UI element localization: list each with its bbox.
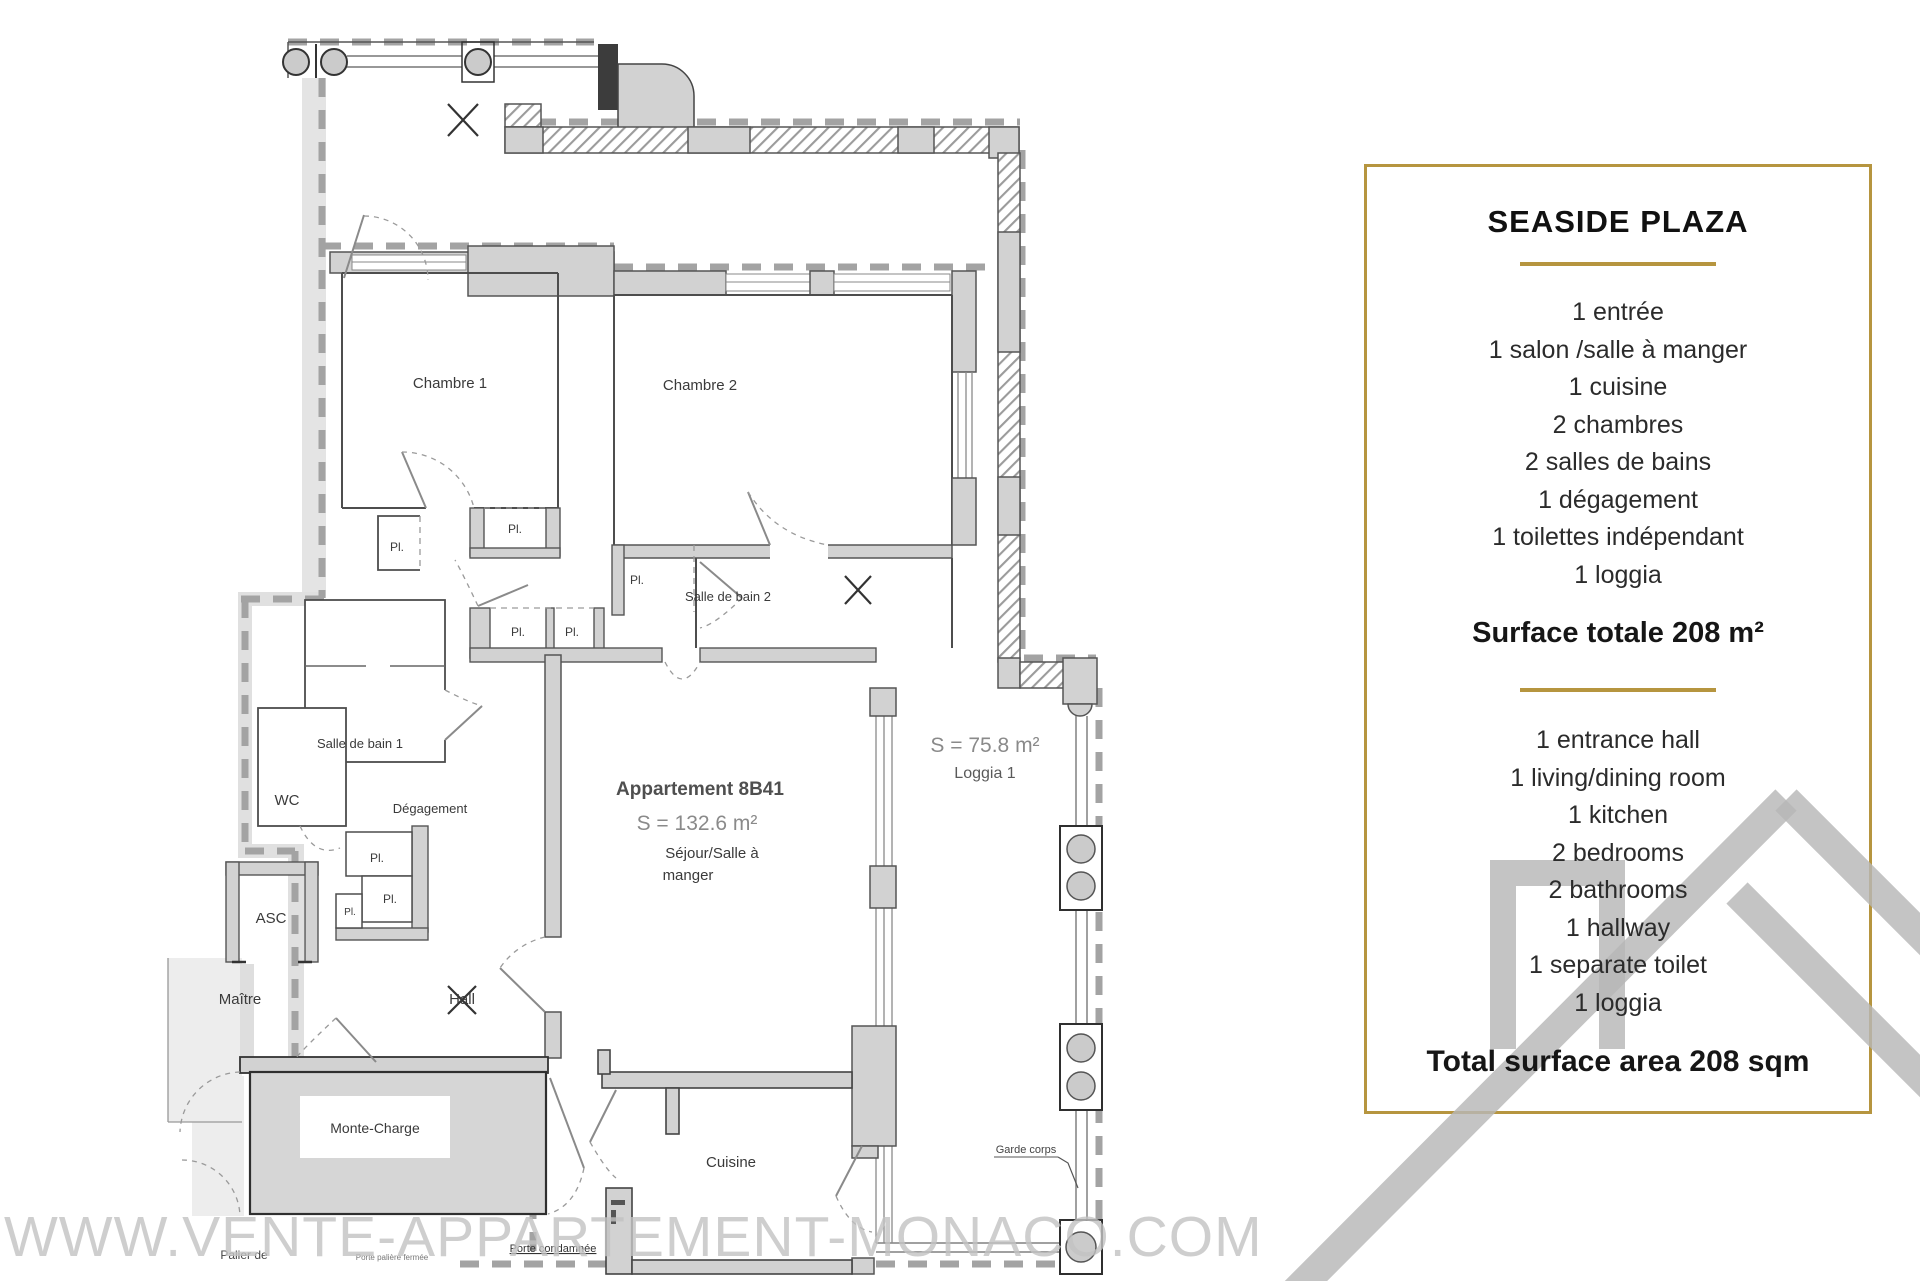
- terrace-structures: [283, 42, 694, 136]
- room-label-maitre: Maître: [219, 991, 262, 1008]
- closet-label: Pl.: [630, 573, 644, 587]
- x-mark-icon: [845, 576, 871, 604]
- apartment-name-label: Appartement 8B41: [616, 779, 784, 800]
- column-icon: [1067, 1034, 1095, 1062]
- closet-label: Pl.: [344, 907, 356, 918]
- loggia-name-label: Loggia 1: [954, 765, 1015, 782]
- list-item-en: 1 entrance hall: [1510, 722, 1725, 760]
- room-label-sdb2: Salle de bain 2: [685, 589, 771, 604]
- room-label-chambre-1: Chambre 1: [413, 375, 487, 392]
- english-room-list: 1 entrance hall 1 living/dining room 1 k…: [1510, 722, 1725, 1022]
- room-label-degagement: Dégagement: [393, 801, 468, 816]
- room-label-asc: ASC: [256, 910, 287, 927]
- closet-label: Pl.: [370, 851, 384, 865]
- list-item-en: 1 living/dining room: [1510, 760, 1725, 798]
- loggia-area-label: S = 75.8 m²: [930, 734, 1039, 757]
- column-icon: [321, 49, 347, 75]
- column-icon: [465, 49, 491, 75]
- closets-corridor: [378, 508, 876, 679]
- list-item-en: 2 bathrooms: [1510, 872, 1725, 910]
- chambre1-walls: [330, 215, 614, 508]
- list-item-fr: 2 chambres: [1489, 407, 1747, 445]
- monte-charge-walls: [250, 1072, 584, 1214]
- room-label-chambre-2: Chambre 2: [663, 377, 737, 394]
- room-label-sdb1: Salle de bain 1: [317, 736, 403, 751]
- sejour-loggia-window-wall: [852, 688, 896, 1274]
- list-item-fr: 2 salles de bains: [1489, 444, 1747, 482]
- garde-corps-label: Garde corps: [996, 1144, 1057, 1156]
- list-item-en: 2 bedrooms: [1510, 835, 1725, 873]
- list-item-en: 1 loggia: [1510, 985, 1725, 1023]
- surface-total-en: Total surface area 208 sqm: [1427, 1043, 1810, 1081]
- room-label-monte-charge: Monte-Charge: [330, 1120, 420, 1136]
- column-icon: [283, 49, 309, 75]
- info-panel-content: SEASIDE PLAZA 1 entrée 1 salon /salle à …: [1364, 164, 1872, 1114]
- column-icon: [1067, 835, 1095, 863]
- floor-plan-page: Chambre 1 Chambre 2 Salle de bain 2 Sall…: [0, 0, 1920, 1281]
- list-item-en: 1 separate toilet: [1510, 947, 1725, 985]
- top-exterior-wall: [505, 104, 1019, 158]
- apartment-area-label: S = 132.6 m²: [637, 812, 758, 835]
- sejour-label-line1: Séjour/Salle à: [665, 845, 759, 862]
- sejour-label-line2: manger: [663, 867, 714, 884]
- gold-divider: [1520, 688, 1716, 692]
- closet-label: Pl.: [565, 625, 579, 639]
- watermark-text: WWW.VENTE-APPARTEMENT-MONACO.COM: [4, 1204, 1263, 1270]
- column-icon: [1067, 872, 1095, 900]
- list-item-fr: 1 toilettes indépendant: [1489, 519, 1747, 557]
- loggia-railing: [876, 716, 1102, 1274]
- list-item-fr: 1 salon /salle à manger: [1489, 332, 1747, 370]
- list-item-en: 1 kitchen: [1510, 797, 1725, 835]
- closet-label: Pl.: [383, 892, 397, 906]
- surface-total-fr: Surface totale 208 m²: [1472, 614, 1764, 652]
- room-label-cuisine: Cuisine: [706, 1154, 756, 1171]
- french-room-list: 1 entrée 1 salon /salle à manger 1 cuisi…: [1489, 294, 1747, 594]
- room-label-wc: WC: [275, 792, 300, 809]
- closet-label: Pl.: [511, 625, 525, 639]
- list-item-fr: 1 loggia: [1489, 557, 1747, 595]
- column-icon: [1067, 1072, 1095, 1100]
- x-mark-icon: [448, 104, 478, 136]
- list-item-en: 1 hallway: [1510, 910, 1725, 948]
- right-exterior-wall: [998, 153, 1097, 716]
- chambre2-walls: [614, 271, 976, 559]
- panel-title: SEASIDE PLAZA: [1487, 202, 1748, 242]
- gold-divider: [1520, 262, 1716, 266]
- list-item-fr: 1 cuisine: [1489, 369, 1747, 407]
- room-label-hall: Hall: [449, 991, 475, 1008]
- closet-label: Pl.: [508, 522, 522, 536]
- list-item-fr: 1 dégagement: [1489, 482, 1747, 520]
- list-item-fr: 1 entrée: [1489, 294, 1747, 332]
- closet-label: Pl.: [390, 540, 404, 554]
